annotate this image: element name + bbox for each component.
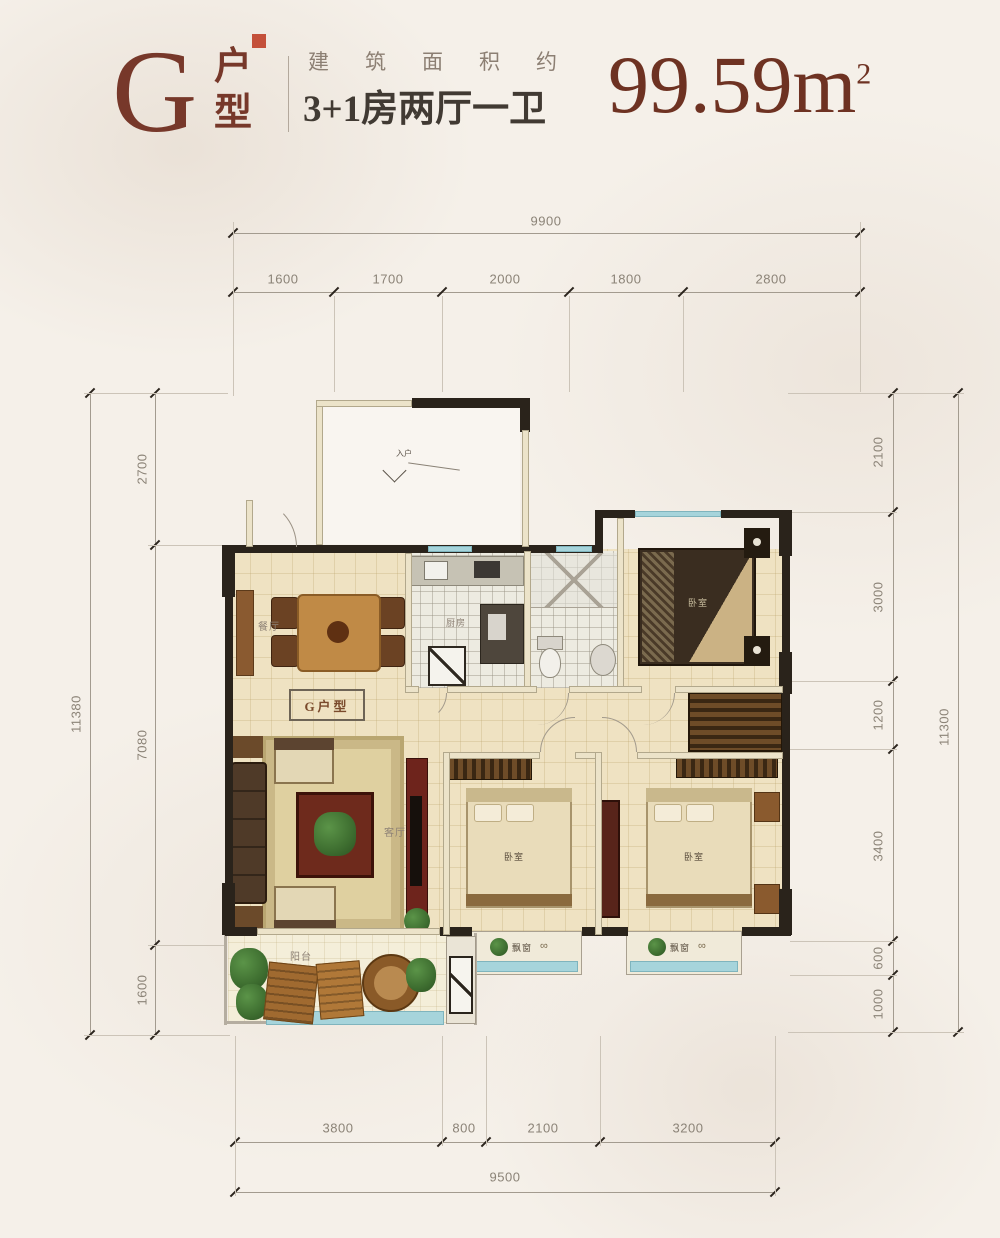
- wall-bottom: [742, 927, 791, 936]
- dim-bottom-1: 3800: [323, 1121, 354, 1136]
- kitchen-cabinet-detail: [488, 614, 506, 640]
- dimline-left-chain: [155, 393, 156, 1035]
- bed-master-pillows: [642, 552, 674, 662]
- bay-window-icon: ∞: [540, 940, 549, 952]
- wall-bottom: [582, 927, 628, 936]
- wall-pier: [779, 510, 792, 556]
- entry-court-wall-left: [316, 400, 323, 545]
- wall-hall: [569, 686, 642, 693]
- dim-bottom-2: 800: [452, 1121, 475, 1136]
- nightstand: [754, 792, 780, 822]
- sofa: [231, 762, 267, 904]
- dim-right-6: 1000: [871, 989, 886, 1020]
- plant-icon: [406, 958, 436, 992]
- bay-window-2-glass: [630, 961, 738, 972]
- area-value: 99.59m2: [608, 38, 871, 132]
- entry-door-arc: [253, 500, 297, 547]
- entry-court-wall-top-black: [412, 398, 530, 408]
- dining-chair: [271, 635, 299, 667]
- plant-icon: [648, 938, 666, 956]
- wall-kitchen-dining: [405, 553, 412, 688]
- dining-chair: [377, 597, 405, 629]
- washing-machine: [449, 956, 473, 1014]
- label-bedroom1: 卧室: [688, 596, 708, 609]
- dim-left-2: 7080: [135, 730, 150, 761]
- dim-right-5: 600: [871, 946, 886, 969]
- entry-court-wall-right-black: [520, 398, 530, 432]
- kitchen-window: [428, 546, 472, 552]
- area-sup: 2: [856, 58, 871, 91]
- wall-hall: [447, 686, 537, 693]
- lounge-chair: [316, 960, 365, 1020]
- dimline-top-total: [233, 233, 860, 234]
- dim-top-total: 9900: [531, 214, 562, 229]
- bed-3-footboard: [646, 894, 752, 906]
- wall-left: [225, 545, 233, 935]
- pillow: [474, 804, 502, 822]
- dim-left-total: 11380: [69, 695, 84, 733]
- dim-right-3: 1200: [871, 700, 886, 731]
- dim-bottom-3: 2100: [528, 1121, 559, 1136]
- dim-top-3: 2000: [490, 272, 521, 287]
- side-table: [231, 906, 263, 928]
- plant-icon: [490, 938, 508, 956]
- nightstand: [754, 884, 780, 914]
- floorplan-page: G 户 型 建筑面积约 3+1房两厅一卫 99.59m2 9900 1600 1…: [0, 0, 1000, 1238]
- balcony-wall-left: [224, 933, 227, 1025]
- dimline-bottom-total: [235, 1192, 775, 1193]
- side-table: [231, 736, 263, 758]
- fridge: [428, 646, 466, 686]
- bay-window-icon: ∞: [698, 940, 707, 952]
- kitchen-sink: [424, 561, 448, 580]
- wall-hall: [405, 686, 419, 693]
- label-living: 客厅: [384, 824, 406, 839]
- wardrobe-bedroom2: [448, 756, 532, 780]
- pillow: [506, 804, 534, 822]
- unit-type-top: 户: [214, 46, 252, 88]
- header-divider: [288, 56, 289, 132]
- area-number: 99.59m: [608, 39, 856, 130]
- bedroom1-window: [635, 511, 721, 517]
- pillow: [654, 804, 682, 822]
- bed-3-headboard: [646, 788, 752, 802]
- wardrobe-bedroom3: [676, 756, 778, 778]
- dimline-right-chain: [893, 393, 894, 1032]
- hall-cabinet: [688, 692, 783, 752]
- entry-court-floor: [318, 402, 520, 544]
- wall-living-bedroom2: [443, 752, 450, 935]
- bathroom-window: [556, 546, 592, 552]
- entry-court-wall-right: [522, 430, 529, 547]
- dim-right-4: 3400: [871, 831, 886, 862]
- wall-bedrooms-north: [443, 752, 540, 759]
- wall-hall: [675, 686, 783, 693]
- dim-top-5: 2800: [756, 272, 787, 287]
- label-entry: 入户: [396, 448, 412, 459]
- unit-type-bottom: 型: [214, 92, 252, 134]
- plant-icon: [314, 812, 356, 856]
- balcony-table-top: [374, 966, 408, 1000]
- shower-area: [531, 553, 617, 608]
- wall-right: [782, 512, 790, 935]
- sliding-door-balcony: [257, 928, 440, 935]
- red-badge-icon: [252, 34, 266, 48]
- lamp-icon: [753, 538, 761, 546]
- tv: [410, 796, 422, 886]
- toilet-bowl: [539, 648, 561, 678]
- bed-2-footboard: [466, 894, 572, 906]
- layout-description: 3+1房两厅一卫: [303, 78, 546, 132]
- label-bedroom3: 卧室: [684, 850, 704, 863]
- wall-kitchen-bath: [524, 551, 531, 688]
- unit-letter: G: [112, 42, 197, 142]
- unit-type-box: G户型: [289, 689, 365, 721]
- dining-sideboard: [236, 590, 254, 676]
- wall-bedrooms-north: [637, 752, 783, 759]
- armchair-back: [274, 738, 334, 750]
- washbasin: [590, 644, 616, 676]
- dining-chair: [377, 635, 405, 667]
- bed-2-headboard: [466, 788, 572, 802]
- dim-bottom-total: 9500: [490, 1170, 521, 1185]
- wall-pier: [222, 545, 235, 597]
- dim-top-4: 1800: [611, 272, 642, 287]
- entry-court-wall-top: [316, 400, 412, 407]
- dimline-right-total: [958, 393, 959, 1032]
- kitchen-stove: [474, 561, 500, 578]
- lounge-chair: [263, 962, 319, 1025]
- balcony-wall-bottom: [224, 1021, 272, 1024]
- entry-door-leaf: [246, 500, 253, 547]
- dim-top-1: 1600: [268, 272, 299, 287]
- dimline-bottom-chain: [235, 1142, 775, 1143]
- wall-bedroom2-bedroom3: [595, 752, 602, 935]
- dim-right-total: 11300: [937, 708, 952, 746]
- dim-left-3: 1600: [135, 975, 150, 1006]
- label-dining: 餐厅: [258, 618, 280, 633]
- label-bedroom2: 卧室: [504, 850, 524, 863]
- wall-bottom: [225, 927, 257, 936]
- dim-left-1: 2700: [135, 454, 150, 485]
- wall-step: [595, 512, 603, 552]
- label-bay-window-2: 飘窗: [670, 941, 690, 954]
- lamp-icon: [753, 646, 761, 654]
- pillow: [686, 804, 714, 822]
- label-bay-window-1: 飘窗: [512, 941, 532, 954]
- dim-right-1: 2100: [871, 437, 886, 468]
- dimline-top-chain: [233, 292, 860, 293]
- dim-top-2: 1700: [373, 272, 404, 287]
- dimline-left-total: [90, 393, 91, 1035]
- label-balcony: 阳台: [290, 948, 312, 963]
- dim-right-2: 3000: [871, 582, 886, 613]
- bay-window-1-glass: [472, 961, 578, 972]
- dining-centerpiece: [327, 621, 349, 643]
- wall-bath-bedroom1: [617, 518, 624, 688]
- dim-bottom-4: 3200: [673, 1121, 704, 1136]
- label-kitchen: 厨房: [446, 616, 466, 629]
- area-prefix-label: 建筑面积约: [308, 46, 593, 76]
